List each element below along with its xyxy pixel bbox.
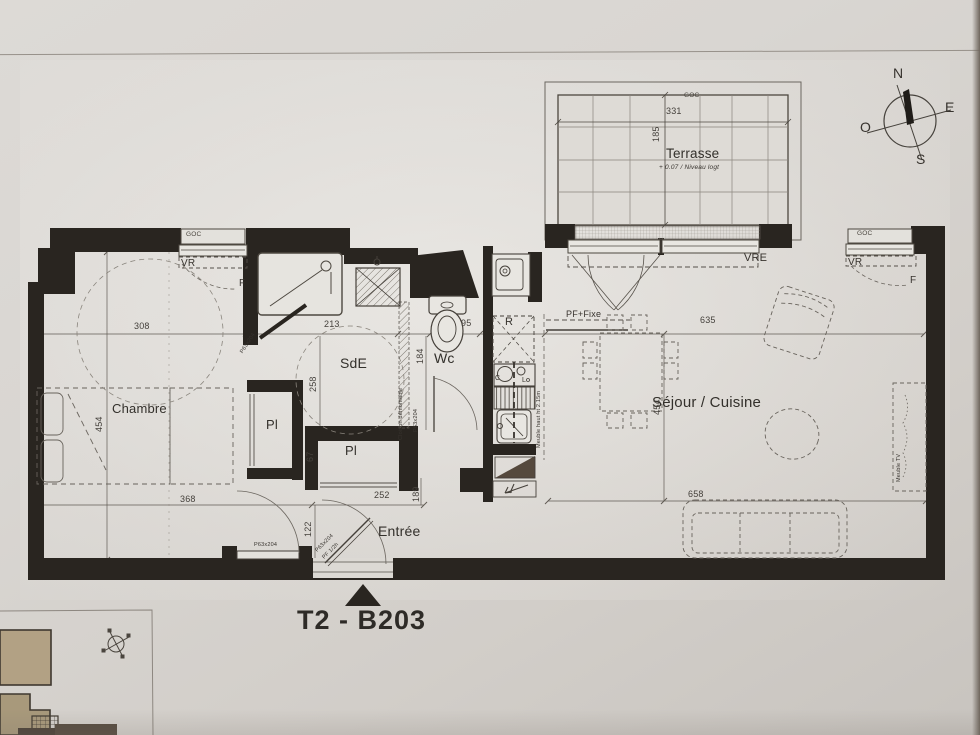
dim-hall: 122 [304, 521, 313, 537]
turning-circle-bedroom [77, 259, 223, 405]
bedroom-door-label: P63x204 [254, 543, 277, 549]
window-bay [568, 226, 760, 310]
room-label-bedroom: Chambre [112, 402, 167, 415]
entry-threshold [313, 558, 393, 578]
dim-living-width: 635 [700, 316, 716, 325]
compass-north-label: N [893, 66, 903, 80]
compass-east-label: E [945, 100, 955, 114]
dim-terrace-width: 331 [666, 107, 682, 116]
fixed-glazing-partition [546, 320, 630, 330]
dim-entry-width: 252 [374, 491, 390, 500]
compass-west-label: O [860, 120, 871, 134]
bay-shutter-label: VRE [744, 253, 767, 264]
room-label-living: Séjour / Cuisine [652, 395, 761, 410]
room-label-shower: SdE [340, 356, 367, 370]
wc-door-swing [434, 376, 477, 432]
terrace-shutter-box-label: GOC [684, 93, 699, 100]
sofa [683, 500, 847, 558]
site-roof-block [55, 724, 117, 735]
terrace-label: Terrasse [666, 147, 719, 161]
hob-label: C [495, 375, 500, 382]
dim-living-depth: 454 [653, 399, 662, 415]
floorplan-photo: Chambre SdE Wc Séjour / Cuisine Entrée P… [0, 0, 980, 735]
floorplan-linework [0, 0, 980, 735]
shower-tray [258, 253, 342, 315]
shutter-box-left-label: GOC [186, 232, 201, 239]
dim-terrace-depth: 185 [652, 126, 661, 142]
dim-living-south: 658 [688, 490, 704, 499]
photo-edge-shadow [972, 0, 980, 735]
fridge-label: R [505, 317, 513, 328]
coffee-table [759, 403, 824, 465]
bedroom-door [237, 491, 299, 559]
wall-unit-label: Meuble haut ht 2.15m [537, 391, 543, 448]
tv-unit-label: Meuble TV [897, 454, 903, 482]
room-label-wc: Wc [434, 351, 455, 365]
compass-rose [867, 85, 951, 160]
armchair [762, 284, 836, 361]
shutter-box-right-label: GOC [857, 231, 872, 238]
dim-shower-depth: 258 [309, 376, 318, 392]
roller-shutter-right-label: VR [848, 258, 862, 268]
dim-bedroom-depth: 454 [95, 416, 104, 432]
dim-wc-width: 95 [461, 319, 471, 328]
room-label-closet2: Pl [345, 444, 357, 457]
unit-marker-triangle [345, 584, 381, 606]
site-compass-icon [102, 629, 130, 658]
site-building-1 [0, 630, 51, 685]
dim-wc-depth: 184 [416, 348, 425, 364]
dim-closet: 67 [306, 452, 315, 462]
dimension-lines [33, 249, 929, 563]
compass-south-label: S [916, 152, 926, 166]
room-label-closet1: Pl [266, 418, 278, 431]
dim-bedroom-south: 368 [180, 495, 196, 504]
duct-wedge [495, 456, 535, 478]
window-left-label: F [239, 279, 245, 289]
terrace-level-label: + 0.07 / Niveau logt [659, 165, 719, 172]
site-plan-fragment [0, 610, 153, 735]
flow-arrow [493, 481, 536, 497]
partition-label: Cloison démontable [399, 388, 405, 440]
dim-bedroom-width: 308 [134, 322, 150, 331]
window-right-label: F [910, 276, 916, 286]
dim-shower-width: 213 [324, 320, 340, 329]
fixed-glazing-label: PF+Fixe [566, 310, 601, 319]
dim-entry-depth: 189 [412, 486, 421, 502]
appliance-label: L [522, 377, 526, 384]
unit-title: T2 - B203 [297, 605, 426, 636]
french-door-swings [572, 255, 660, 310]
wc-door-label: P63x204 [414, 409, 420, 432]
room-label-entry: Entrée [378, 524, 420, 538]
roller-shutter-left-label: VR [181, 259, 195, 269]
